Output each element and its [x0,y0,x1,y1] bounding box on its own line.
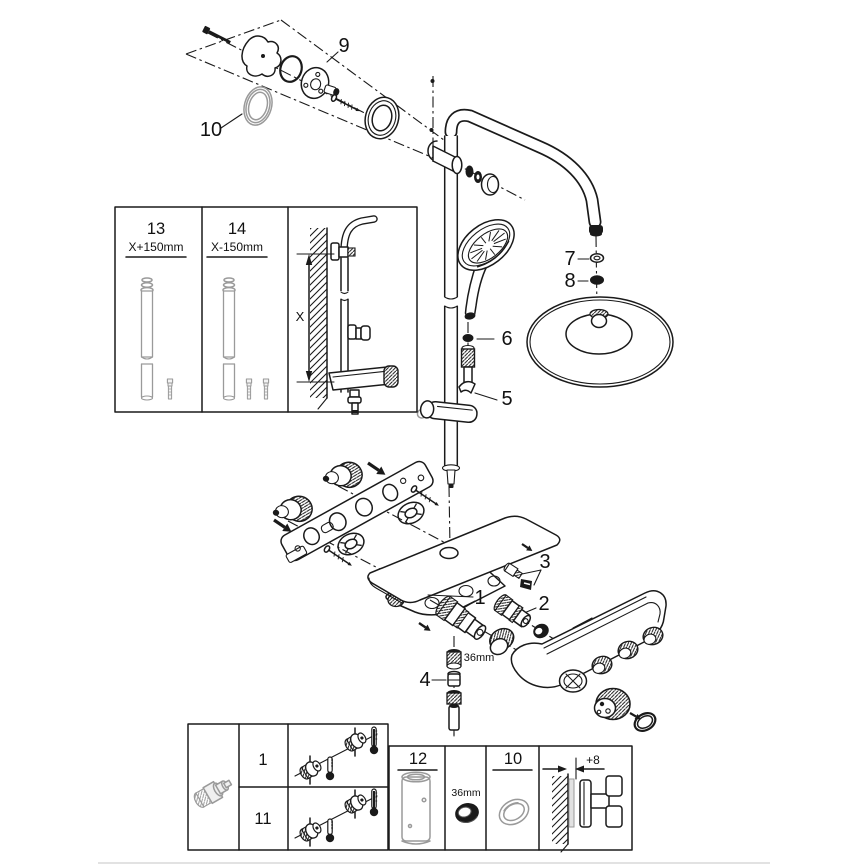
shelf-screw-small [417,620,432,633]
callout-5: 5 [501,388,512,410]
screw-13-icon [167,379,172,399]
exploded-parts-diagram: 9 10 [0,0,868,868]
hand-shower-seal-6 [463,334,474,342]
temperature-knob [595,689,631,720]
inset-part-14: 14 [228,220,246,238]
oval-gasket [631,710,658,735]
flange-screw-icon [330,94,361,114]
washer-7 [591,254,604,262]
part-3-clip [520,579,532,590]
screw-14a-icon [246,379,251,399]
wall-holder-icon [348,325,370,340]
table-row-1-label: 1 [258,751,267,769]
hand-shower [448,210,523,321]
wall-union-parts [428,141,499,195]
check-valve-4 [448,672,460,687]
callout-2: 2 [538,593,549,615]
cartridge-2-seal-ring [531,621,552,641]
dimension-x-label: X [296,309,305,324]
callout-10-leader [221,114,242,128]
inset-part-13: 13 [147,220,165,238]
table-ring-size-label: 36mm [451,787,480,799]
outlet-tube [449,704,459,736]
callout-9: 9 [338,35,349,57]
cover-shell [511,591,666,692]
length-variants-inset [115,207,417,414]
riser-tube-14-icon [223,278,235,400]
screw-14b-icon [263,379,268,399]
thermostat-valve-exploded-group [271,457,666,736]
o-ring-8 [590,275,604,285]
callout-1: 1 [474,587,485,609]
union-fitting-left [272,491,315,525]
head-shower-group [527,225,673,387]
wall-offset-label: +8 [586,753,600,767]
table-row-11-label: 11 [254,810,271,828]
callout-5-leader [475,393,497,400]
ring-size-main: 36mm [464,652,495,664]
callout-10-top: 10 [200,119,222,141]
callout-8: 8 [564,270,575,292]
callout-3: 3 [539,551,550,573]
table-cell-12-label: 12 [409,750,427,768]
table-cell-10-label: 10 [504,750,522,768]
union-fitting-right [322,457,365,491]
callout-6: 6 [501,328,512,350]
chain-connector-top [447,649,461,669]
inset-length-13: X+150mm [128,240,183,254]
rosette-icon [360,93,403,142]
part-3-fitting [503,562,523,579]
diagram-page: 9 10 [0,0,868,868]
screw-arrow-right [365,459,387,478]
rain-shower-disc [527,297,673,387]
inset-length-14: X-150mm [211,240,263,254]
parts-table-inset [188,724,632,852]
check-valve-chain [447,636,461,736]
wall-anchor-exploded-group [186,20,525,200]
riser-pipe [443,136,460,488]
callout-4: 4 [419,669,430,691]
arm-end-nut [589,225,603,237]
riser-tube-13-icon [141,278,153,400]
mounting-plate-icon [242,36,281,76]
chain-connector-bottom [447,690,461,704]
callout-7: 7 [564,248,575,270]
escutcheon-ring-10 [240,84,277,129]
